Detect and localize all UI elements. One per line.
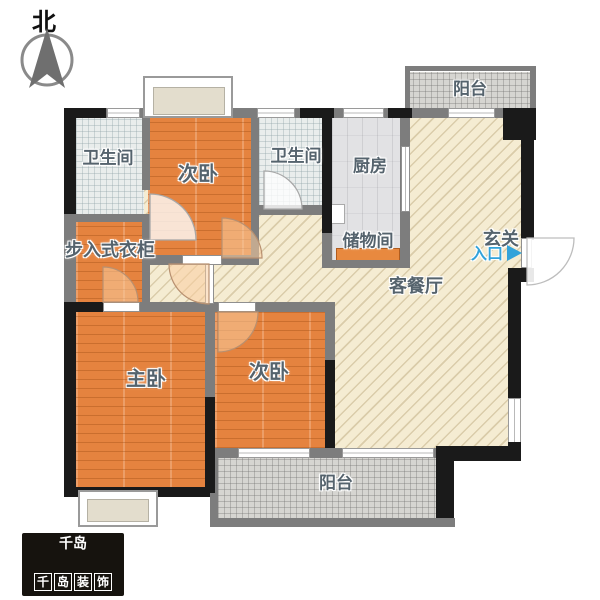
brand-logo: 千岛 千岛装饰 [22, 533, 124, 596]
room-label-master: 主卧 [126, 363, 166, 392]
floor-plan: 北 [0, 0, 600, 600]
room-label-bedroom1: 次卧 [178, 158, 218, 187]
room-label-balcony-top: 阳台 [453, 75, 487, 100]
brand-logo-mark-text: 千岛 [59, 536, 87, 552]
door-arcs [0, 0, 600, 600]
entry-label: 入口 [471, 240, 503, 264]
brand-logo-char: 装 [74, 573, 92, 591]
brand-logo-char: 千 [34, 573, 52, 591]
brand-logo-char: 岛 [54, 573, 72, 591]
room-label-bathroom1: 卫生间 [83, 144, 134, 169]
room-label-closet: 步入式衣柜 [65, 236, 155, 262]
room-label-storage: 储物间 [343, 227, 394, 252]
room-label-living: 客餐厅 [389, 272, 443, 298]
brand-logo-char: 饰 [94, 573, 112, 591]
brand-logo-mark: 千岛 [22, 537, 124, 567]
room-label-kitchen: 厨房 [353, 152, 387, 177]
room-label-bedroom2: 次卧 [249, 356, 289, 385]
room-label-bathroom2: 卫生间 [271, 142, 322, 167]
brand-logo-name: 千岛装饰 [22, 571, 124, 591]
room-label-balcony-bottom: 阳台 [319, 469, 353, 494]
entry-arrow-icon [507, 245, 522, 261]
